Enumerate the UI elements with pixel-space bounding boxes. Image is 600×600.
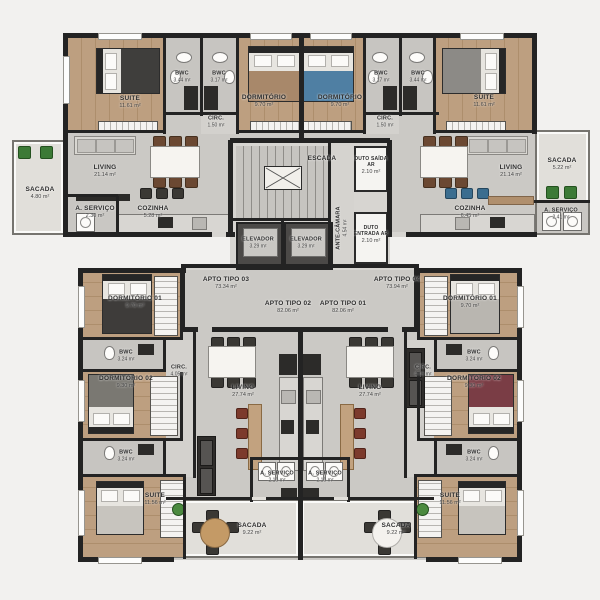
wall <box>166 497 300 500</box>
wall <box>81 438 183 441</box>
chair <box>169 177 182 188</box>
wall <box>299 33 304 142</box>
label-circ-br: CIRC.4.05 m² <box>415 365 432 378</box>
window <box>78 490 85 536</box>
headboard <box>97 49 103 93</box>
pillow <box>105 53 117 70</box>
wall <box>417 337 519 340</box>
label-escada: ESCADA <box>308 155 337 163</box>
bar-stool <box>354 408 366 419</box>
door-gap <box>252 497 266 500</box>
wall <box>163 441 166 477</box>
bed <box>96 481 144 535</box>
label-apto-tipo-04: APTO TIPO 0473.94 m² <box>374 276 420 290</box>
door-gap <box>212 232 226 237</box>
cushion <box>469 139 488 153</box>
kitchen-sink <box>192 217 207 230</box>
wall <box>81 369 166 372</box>
wall <box>68 194 118 197</box>
door-gap <box>392 232 406 237</box>
wall <box>81 474 186 477</box>
label-bwc2-bl: BWC3.24 m² <box>118 450 135 463</box>
window <box>310 33 352 40</box>
dining-table <box>208 346 256 378</box>
label-apto-tipo-03: APTO TIPO 0373.34 m² <box>203 276 249 290</box>
pillow <box>101 490 118 502</box>
wall <box>414 477 417 559</box>
label-bwc2-tl: BWC3.17 m² <box>211 71 228 84</box>
pillow <box>485 73 497 90</box>
wall <box>183 477 186 559</box>
label-elevador-1: ELEVADOR3.29 m² <box>242 237 274 250</box>
label-sacada-br: SACADA9.22 m² <box>381 522 410 536</box>
label-dormitorio2-br: DORMITÓRIO 029.30 m² <box>447 375 501 389</box>
pillow <box>493 413 510 425</box>
door-gap <box>334 497 348 500</box>
chair <box>423 177 436 188</box>
sofa <box>197 436 216 496</box>
wall <box>281 221 284 266</box>
label-bwc1-tr: BWC3.17 m² <box>373 71 390 84</box>
wall <box>433 130 534 133</box>
plant <box>18 146 31 159</box>
sink <box>409 52 425 63</box>
bed <box>458 481 506 535</box>
label-dormitorio-tr: DORMITÓRIO9.70 m² <box>318 94 362 108</box>
sink <box>138 344 154 355</box>
cushion <box>200 468 213 494</box>
pillow <box>478 283 495 295</box>
window <box>78 286 85 328</box>
sink <box>138 444 154 455</box>
window <box>458 557 502 564</box>
label-ante-camara: ANTE-CÂMARA4.54 m² <box>336 206 349 249</box>
kitchen-counter <box>118 214 232 233</box>
sofa <box>466 136 528 155</box>
label-bwc1-bl: BWC3.24 m² <box>118 350 135 363</box>
headboard <box>303 47 353 53</box>
headboard <box>89 427 133 433</box>
door-gap <box>388 327 402 332</box>
wall <box>68 130 166 133</box>
cushion <box>409 380 422 406</box>
window <box>517 286 524 328</box>
toilet <box>488 346 499 360</box>
shelf <box>488 196 534 205</box>
label-suite-tl: SUITE11.61 m² <box>119 95 140 109</box>
pillow <box>485 53 497 70</box>
pillow <box>108 283 125 295</box>
pillow <box>93 413 110 425</box>
wall <box>433 38 436 134</box>
pillow <box>130 283 147 295</box>
label-living-br: LIVING27.74 m² <box>359 384 382 398</box>
blanket <box>443 49 481 93</box>
dining-table <box>346 346 394 378</box>
wall <box>116 196 119 237</box>
wall <box>417 438 519 441</box>
wall <box>387 140 392 237</box>
wall <box>63 232 235 237</box>
pillow <box>473 413 490 425</box>
wall <box>163 112 239 115</box>
cushion <box>507 139 526 153</box>
blanket <box>121 49 159 93</box>
chair <box>153 177 166 188</box>
label-bwc1-tl: BWC3.44 m² <box>174 71 191 84</box>
wall <box>434 340 437 372</box>
wall <box>414 268 522 273</box>
label-bwc1-br: BWC3.24 m² <box>466 350 483 363</box>
pillow <box>331 55 349 67</box>
headboard <box>97 482 143 488</box>
chair <box>455 177 468 188</box>
dining-table <box>420 146 468 178</box>
fridge <box>303 354 321 375</box>
window <box>98 33 142 40</box>
wall <box>78 268 186 273</box>
stove <box>490 217 505 228</box>
wall <box>230 264 390 268</box>
wall <box>363 38 366 134</box>
label-living-bl: LIVING27.74 m² <box>232 384 255 398</box>
wall <box>399 38 402 116</box>
label-sacada-bl: SACADA9.22 m² <box>237 522 266 536</box>
shower <box>204 86 218 110</box>
fridge <box>279 354 297 375</box>
wall <box>534 200 590 203</box>
window <box>78 380 85 422</box>
wall <box>230 218 330 221</box>
stove <box>281 420 294 434</box>
sofa <box>406 348 425 408</box>
wall <box>300 130 366 133</box>
pillow <box>113 413 130 425</box>
chair <box>211 377 224 388</box>
wall <box>250 457 298 460</box>
bar-stool <box>354 448 366 459</box>
plant <box>564 186 577 199</box>
bar-stool <box>236 448 248 459</box>
label-suite-br: SUITE11.56 m² <box>439 492 460 506</box>
pillow <box>123 490 140 502</box>
wall <box>414 474 519 477</box>
label-bwc2-br: BWC3.24 m² <box>466 450 483 463</box>
label-dormitorio1-br: DORMITÓRIO 019.70 m² <box>443 295 497 309</box>
sofa <box>74 136 136 155</box>
plant <box>416 503 429 516</box>
wall <box>434 369 519 372</box>
wall <box>386 232 537 237</box>
label-dormitorio-tl: DORMITÓRIO9.70 m² <box>242 94 286 108</box>
plant <box>546 186 559 199</box>
bar-stool <box>156 188 168 199</box>
label-living-tl: LIVING21.14 m² <box>94 164 117 178</box>
label-duto-saida: DUTO SAÍDA AR2.10 m² <box>353 157 389 175</box>
wall <box>180 272 183 340</box>
label-elevador-2: ELEVADOR3.29 m² <box>290 237 322 250</box>
kitchen-sink <box>281 390 296 404</box>
wall <box>193 332 196 478</box>
bar-stool <box>461 188 473 199</box>
wall <box>163 340 166 372</box>
toilet <box>488 446 499 460</box>
wall <box>181 264 233 268</box>
wall <box>163 38 166 134</box>
headboard <box>499 49 505 93</box>
chair <box>381 377 394 388</box>
bar-stool <box>445 188 457 199</box>
headboard <box>469 427 513 433</box>
label-sacada-tl: SACADA4.80 m² <box>25 186 54 200</box>
wall <box>81 337 183 340</box>
pillow <box>485 490 502 502</box>
toilet <box>104 446 115 460</box>
door-gap <box>198 327 212 332</box>
label-apto-tipo-02: APTO TIPO 0282.06 m² <box>265 300 311 314</box>
bar-stool <box>236 408 248 419</box>
wall <box>228 140 233 237</box>
wall <box>434 441 437 477</box>
sink <box>446 444 462 455</box>
label-sacada-tr: SACADA5.22 m² <box>547 157 576 171</box>
wall <box>347 457 350 502</box>
window <box>63 56 70 104</box>
wall <box>302 457 350 460</box>
label-circ-tr: CIRC.1.50 m² <box>377 116 394 129</box>
pillow <box>456 283 473 295</box>
chair <box>439 177 452 188</box>
headboard <box>459 482 505 488</box>
wall <box>300 497 434 500</box>
label-duto-entrada: DUTO ENTRADA AR2.10 m² <box>353 226 389 244</box>
headboard <box>103 275 151 281</box>
window <box>517 380 524 422</box>
label-servico-tl: A. SERVIÇO2.30 m² <box>75 205 114 219</box>
floor-plan: SUITE11.61 m² BWC3.44 m² BWC3.17 m² DORM… <box>0 0 600 600</box>
pillow <box>308 55 326 67</box>
round-table <box>200 518 230 548</box>
wall <box>363 112 439 115</box>
blanket <box>459 506 505 534</box>
label-dormitorio2-bl: DORMITÓRIO 029.30 m² <box>99 375 153 389</box>
stove <box>306 420 319 434</box>
shower <box>403 86 417 110</box>
label-bwc2-tr: BWC3.44 m² <box>410 71 427 84</box>
wall <box>298 327 303 560</box>
dining-table <box>150 146 200 178</box>
pillow <box>463 490 480 502</box>
label-dormitorio1-bl: DORMITÓRIO 019.70 m² <box>108 295 162 309</box>
window <box>517 490 524 536</box>
cushion <box>488 139 507 153</box>
shower <box>383 86 397 110</box>
sink <box>372 52 388 63</box>
label-circ-bl: CIRC.4.05 m² <box>171 365 188 378</box>
wall <box>236 130 302 133</box>
label-cozinha-tl: COZINHA5.28 m² <box>137 205 168 219</box>
pillow <box>105 73 117 90</box>
bed <box>96 48 160 94</box>
blanket <box>97 506 143 534</box>
pillow <box>277 55 295 67</box>
toilet <box>104 346 115 360</box>
sink <box>212 52 228 63</box>
headboard <box>249 47 299 53</box>
headboard <box>451 275 499 281</box>
sink <box>176 52 192 63</box>
closet <box>150 376 178 436</box>
label-servico-bl: A. SERVIÇO2.10 m² <box>260 471 294 484</box>
label-servico-br: A. SERVIÇO2.10 m² <box>308 471 342 484</box>
cushion <box>115 139 134 153</box>
window <box>250 33 292 40</box>
bar-stool <box>140 188 152 199</box>
stairs-landing <box>264 166 302 190</box>
sink <box>446 344 462 355</box>
bar-stool <box>354 428 366 439</box>
wall <box>404 332 407 478</box>
pillow <box>254 55 272 67</box>
cushion <box>200 440 213 466</box>
label-circ-tl: CIRC.1.50 m² <box>208 116 225 129</box>
plant <box>40 146 53 159</box>
label-living-tr: LIVING21.14 m² <box>500 164 523 178</box>
wall <box>180 372 183 441</box>
shower <box>184 86 198 110</box>
wall <box>230 138 390 143</box>
wall <box>532 33 537 134</box>
bar-stool <box>236 428 248 439</box>
label-suite-tr: SUÍTE11.61 m² <box>473 94 494 108</box>
chair <box>185 177 198 188</box>
x-mark-icon <box>265 167 301 189</box>
wall <box>236 38 239 134</box>
kitchen-sink <box>306 390 321 404</box>
label-suite-bl: SUITE11.56 m² <box>144 492 165 506</box>
wall <box>200 38 203 116</box>
cushion <box>96 139 115 153</box>
bed <box>442 48 506 94</box>
window <box>98 557 142 564</box>
wall <box>417 372 420 441</box>
bar-stool <box>172 188 184 199</box>
cushion <box>77 139 96 153</box>
window <box>460 33 504 40</box>
label-apto-tipo-01: APTO TIPO 0182.06 m² <box>320 300 366 314</box>
label-cozinha-tr: COZINHA6.45 m² <box>454 205 485 219</box>
label-servico-tr: A. SERVIÇO2.41 m² <box>544 208 578 221</box>
wall <box>250 457 253 502</box>
